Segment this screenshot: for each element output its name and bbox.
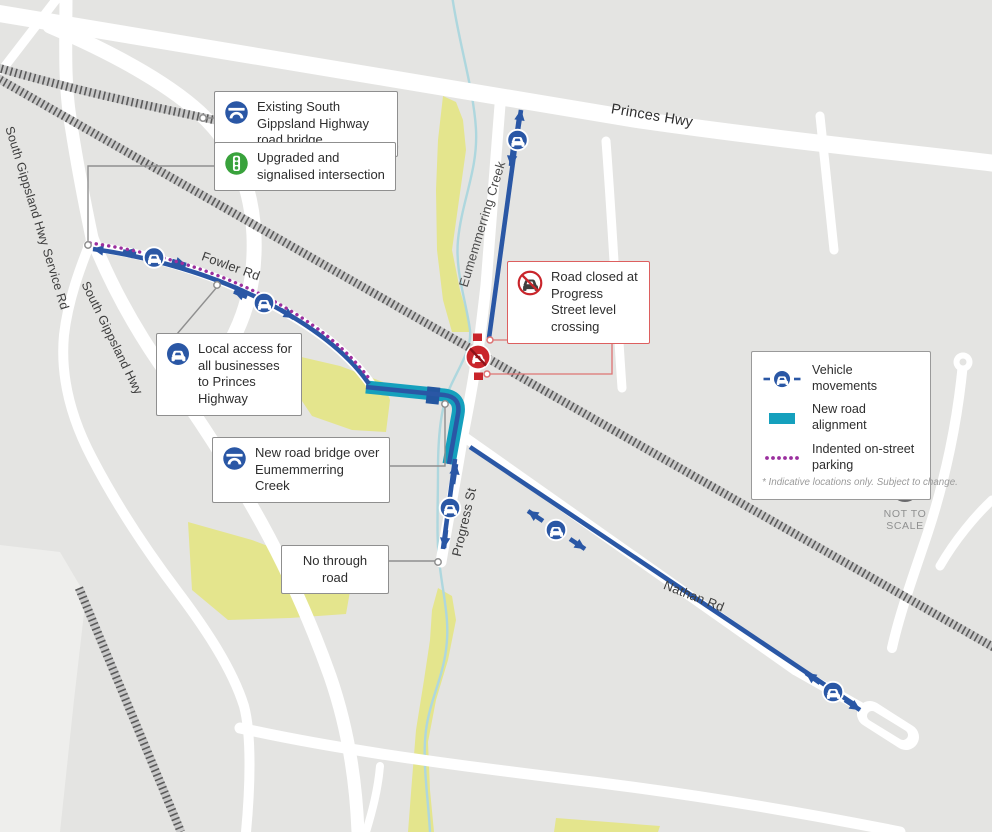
car-icon bbox=[823, 682, 844, 703]
new-road-swatch bbox=[762, 413, 802, 424]
legend-label: Vehicle movements bbox=[812, 363, 920, 394]
bridge-icon bbox=[222, 446, 247, 476]
map-canvas: Princes Hwy South Gippsland Hwy Service … bbox=[0, 0, 992, 832]
legend-row-new-road: New road alignment bbox=[762, 402, 920, 433]
bridge-icon bbox=[224, 100, 249, 130]
callout-no-through-road: No through road bbox=[281, 545, 389, 594]
callout-text: No through road bbox=[291, 553, 379, 586]
no-entry-car-icon bbox=[517, 270, 543, 301]
legend: Vehicle movements New road alignment Ind… bbox=[751, 351, 931, 500]
car-icon bbox=[166, 342, 190, 371]
callout-text: Road closed at Progress Street level cro… bbox=[551, 269, 640, 336]
legend-label: New road alignment bbox=[812, 402, 920, 433]
callout-text: New road bridge over Eumemmerring Creek bbox=[255, 445, 380, 495]
car-icon bbox=[144, 247, 165, 268]
legend-label: Indented on-street parking bbox=[812, 442, 920, 473]
callout-text: Local access for all businesses to Princ… bbox=[198, 341, 292, 408]
road-lollipop-end bbox=[954, 353, 973, 372]
callout-new-bridge: New road bridge over Eumemmerring Creek bbox=[212, 437, 390, 503]
traffic-light-icon bbox=[224, 151, 249, 181]
not-to-scale-label: NOT TO SCALE bbox=[884, 508, 927, 533]
legend-row-parking: Indented on-street parking bbox=[762, 442, 920, 473]
parking-dots-swatch bbox=[762, 454, 802, 462]
car-icon bbox=[546, 520, 567, 541]
compass-line2: SCALE bbox=[884, 520, 927, 532]
callout-local-access: Local access for all businesses to Princ… bbox=[156, 333, 302, 416]
car-icon bbox=[254, 293, 275, 314]
compass-line1: NOT TO bbox=[884, 508, 927, 520]
callout-road-closed: Road closed at Progress Street level cro… bbox=[507, 261, 650, 344]
car-icon bbox=[507, 130, 528, 151]
callout-upgraded-intersection: Upgraded and signalised intersection bbox=[214, 142, 396, 191]
legend-footnote: * Indicative locations only. Subject to … bbox=[762, 477, 920, 489]
callout-text: Upgraded and signalised intersection bbox=[257, 150, 386, 183]
legend-row-vehicle-movements: Vehicle movements bbox=[762, 363, 920, 394]
vehicle-movements-icon bbox=[762, 367, 802, 391]
